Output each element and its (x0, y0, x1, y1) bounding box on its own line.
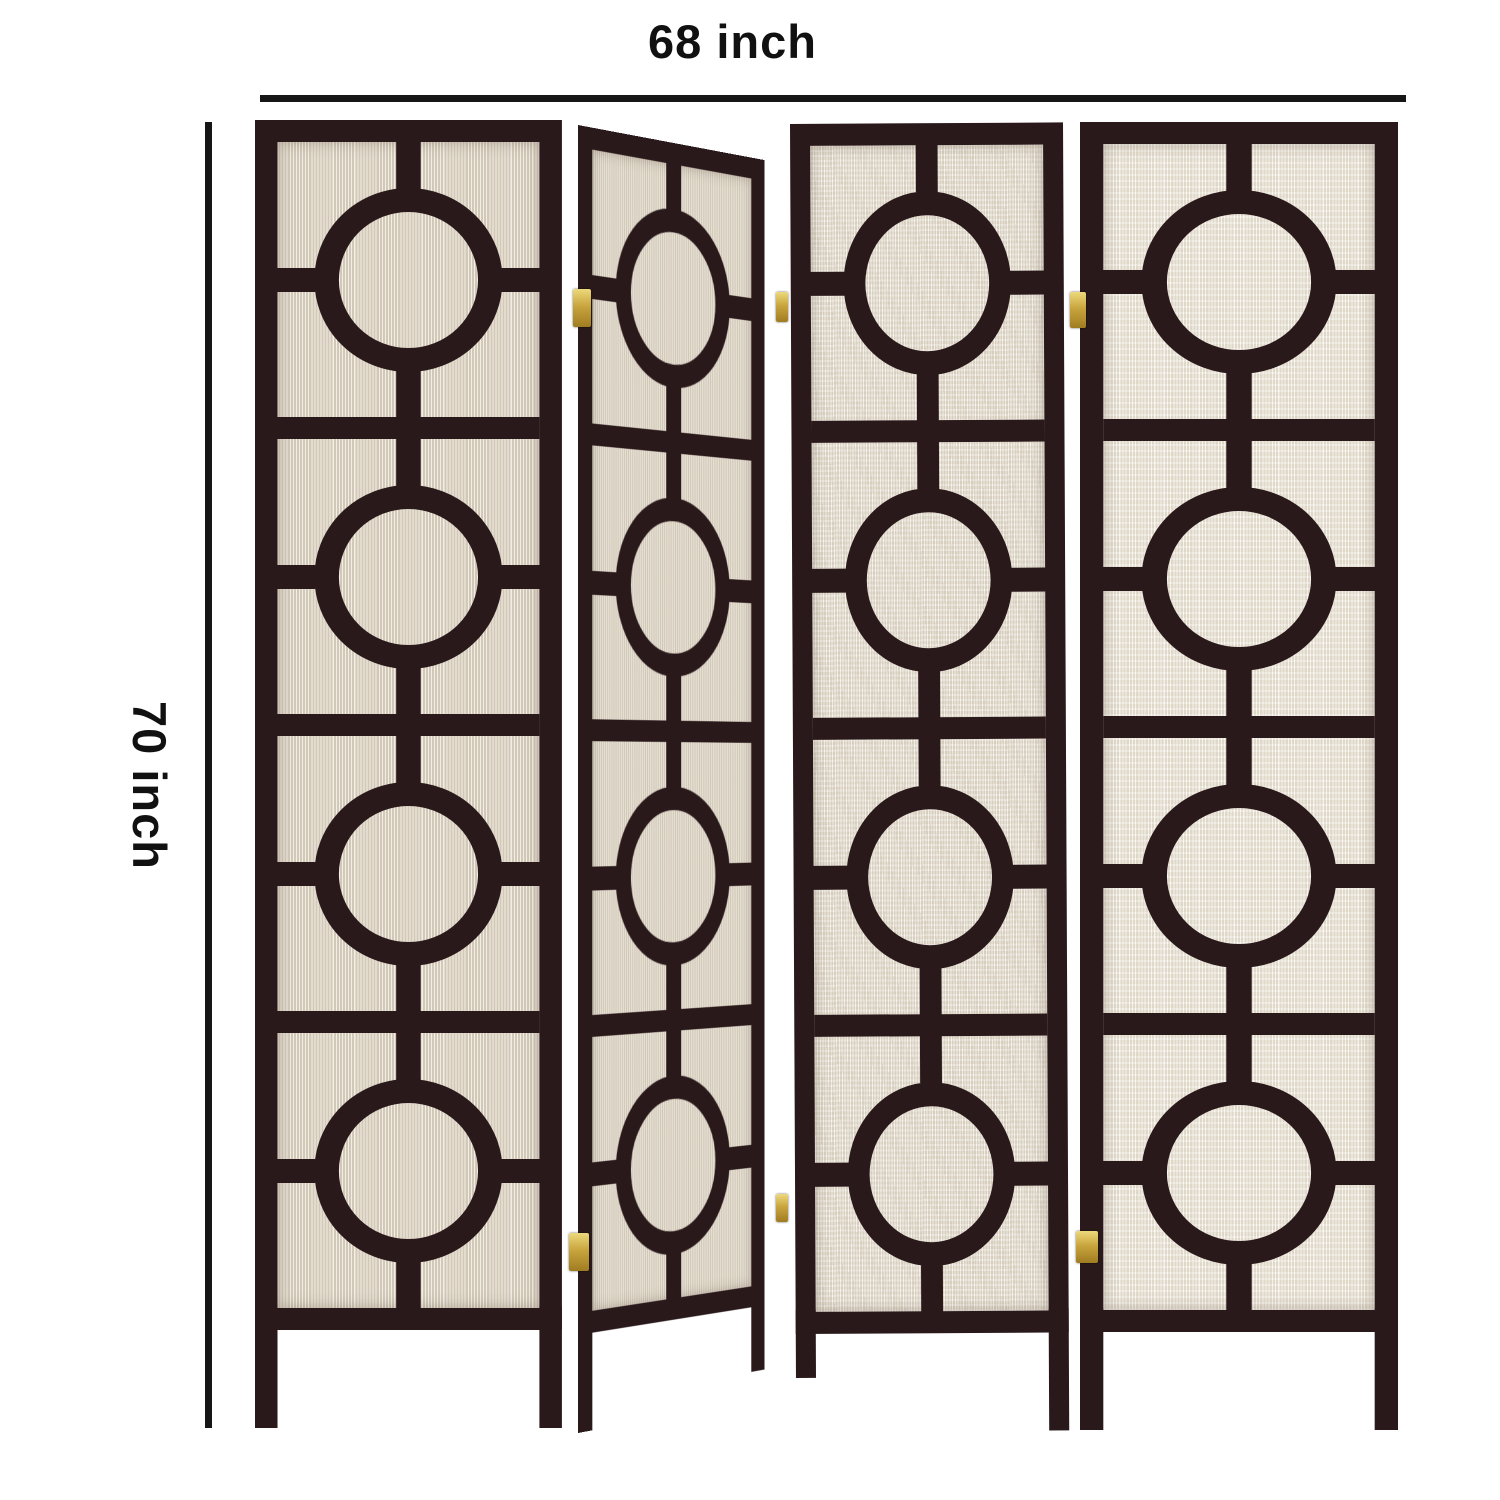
lattice-section (278, 736, 540, 1011)
lattice-bar (396, 1262, 421, 1310)
panel-leg (255, 1306, 278, 1428)
lattice-bar (729, 862, 752, 886)
lattice-bar (729, 295, 752, 321)
lattice-bar (918, 671, 940, 719)
lattice-section (278, 142, 540, 417)
lattice-bar (810, 271, 845, 295)
lattice-bar (1335, 1161, 1375, 1185)
lattice-section (592, 445, 751, 722)
circle-ring (314, 188, 502, 372)
lattice-bar (1102, 864, 1142, 888)
lattice-bar (666, 386, 681, 434)
panel-4 (1080, 122, 1398, 1430)
lattice-bar (396, 965, 421, 1013)
circle-ring (616, 786, 730, 968)
lattice-section (812, 442, 1046, 718)
lattice-bar (666, 1029, 681, 1076)
lattice-bar (1226, 1034, 1251, 1082)
lattice-bar (1226, 670, 1251, 718)
panel-frame (1080, 122, 1398, 1332)
circle-ring (314, 485, 502, 669)
lattice-bar (502, 565, 541, 589)
lattice-bar (729, 1144, 752, 1169)
lattice-bar (666, 1252, 681, 1300)
panel-lattice (278, 142, 540, 1308)
lattice-section (592, 741, 751, 1015)
lattice-section (592, 150, 751, 440)
lattice-bar (1226, 373, 1251, 421)
panel-frame (790, 122, 1069, 1334)
circle-ring (616, 199, 730, 394)
lattice-section (1103, 1035, 1374, 1310)
lattice-bar (1102, 1161, 1142, 1185)
lattice-bar (666, 741, 681, 787)
lattice-bar (396, 141, 421, 189)
panel-leg (796, 1310, 816, 1378)
lattice-bar (1014, 1161, 1049, 1185)
lattice-bar (920, 1035, 942, 1083)
lattice-bar (592, 570, 617, 595)
lattice-bar (1010, 270, 1045, 294)
panel-frame (255, 120, 562, 1330)
circle-ring (843, 190, 1011, 375)
panel-1 (255, 120, 562, 1428)
lattice-bar (666, 162, 681, 211)
lattice-bar (502, 1159, 541, 1183)
lattice-bar (1011, 567, 1046, 591)
lattice-bar (276, 565, 315, 589)
lattice-bar (592, 274, 617, 301)
lattice-bar (814, 1162, 849, 1186)
lattice-section (592, 1025, 751, 1311)
lattice-section (813, 739, 1047, 1015)
circle-ring (846, 784, 1014, 969)
lattice-bar (916, 144, 938, 192)
panel-leg (539, 1306, 562, 1428)
circle-ring (847, 1081, 1015, 1266)
panel-lattice (592, 150, 751, 1311)
hinge-icon (776, 292, 788, 322)
circle-ring (314, 1079, 502, 1263)
panel-group (0, 0, 1500, 1500)
lattice-section (278, 439, 540, 714)
lattice-bar (1013, 864, 1048, 888)
lattice-bar (917, 441, 939, 489)
room-divider-dimension-diagram: 68 inch 70 inch (0, 0, 1500, 1500)
lattice-section (1103, 441, 1374, 716)
lattice-bar (921, 1265, 943, 1313)
lattice-bar (729, 579, 752, 603)
lattice-section (1103, 144, 1374, 419)
hinge-icon (1070, 292, 1086, 328)
lattice-bar (811, 568, 846, 592)
panel-leg (751, 1283, 764, 1372)
cross-rail (1103, 716, 1374, 738)
panel-leg (1080, 1308, 1103, 1430)
panel-leg (578, 1309, 592, 1433)
lattice-bar (1226, 440, 1251, 488)
lattice-bar (1335, 864, 1375, 888)
circle-ring (616, 1070, 730, 1262)
lattice-bar (1102, 567, 1142, 591)
lattice-bar (920, 968, 942, 1016)
lattice-bar (502, 862, 541, 886)
lattice-bar (396, 668, 421, 716)
lattice-bar (396, 438, 421, 486)
hinge-icon (776, 1194, 788, 1222)
circle-ring (1141, 784, 1336, 968)
cross-rail (814, 1014, 1047, 1037)
panel-lattice (1103, 144, 1374, 1310)
lattice-bar (1102, 270, 1142, 294)
lattice-bar (813, 865, 848, 889)
panel-leg (1375, 1308, 1398, 1430)
cross-rail (811, 420, 1044, 443)
lattice-bar (919, 738, 941, 786)
panel-frame (578, 125, 764, 1335)
cross-rail (813, 717, 1046, 740)
cross-rail (1103, 419, 1374, 441)
lattice-bar (1335, 270, 1375, 294)
lattice-section (814, 1036, 1048, 1312)
hinge-icon (569, 1233, 589, 1271)
circle-ring (1141, 487, 1336, 671)
circle-ring (845, 487, 1013, 672)
lattice-bar (276, 862, 315, 886)
lattice-bar (1226, 967, 1251, 1015)
cross-rail (278, 417, 540, 439)
lattice-bar (276, 268, 315, 292)
panel-3 (790, 122, 1069, 1432)
lattice-bar (1335, 567, 1375, 591)
lattice-bar (1226, 143, 1251, 191)
lattice-bar (917, 374, 939, 422)
lattice-bar (1226, 1264, 1251, 1312)
lattice-section (1103, 738, 1374, 1013)
lattice-bar (666, 452, 681, 500)
lattice-bar (666, 964, 681, 1011)
circle-ring (616, 493, 730, 678)
hinge-icon (573, 289, 591, 327)
cross-rail (278, 714, 540, 736)
panel-leg (1049, 1308, 1070, 1430)
lattice-bar (396, 1032, 421, 1080)
lattice-bar (592, 866, 617, 891)
lattice-section (810, 145, 1044, 421)
cross-rail (592, 719, 751, 743)
lattice-bar (396, 371, 421, 419)
cross-rail (278, 1011, 540, 1033)
lattice-bar (666, 675, 681, 722)
circle-ring (1141, 190, 1336, 374)
lattice-section (278, 1033, 540, 1308)
cross-rail (1103, 1013, 1374, 1035)
lattice-bar (592, 1159, 617, 1186)
lattice-bar (502, 268, 541, 292)
circle-ring (314, 782, 502, 966)
panel-2 (578, 125, 764, 1433)
hinge-icon (1076, 1231, 1098, 1263)
lattice-bar (1226, 737, 1251, 785)
panel-lattice (810, 145, 1049, 1312)
lattice-bar (276, 1159, 315, 1183)
lattice-bar (396, 735, 421, 783)
circle-ring (1141, 1081, 1336, 1265)
